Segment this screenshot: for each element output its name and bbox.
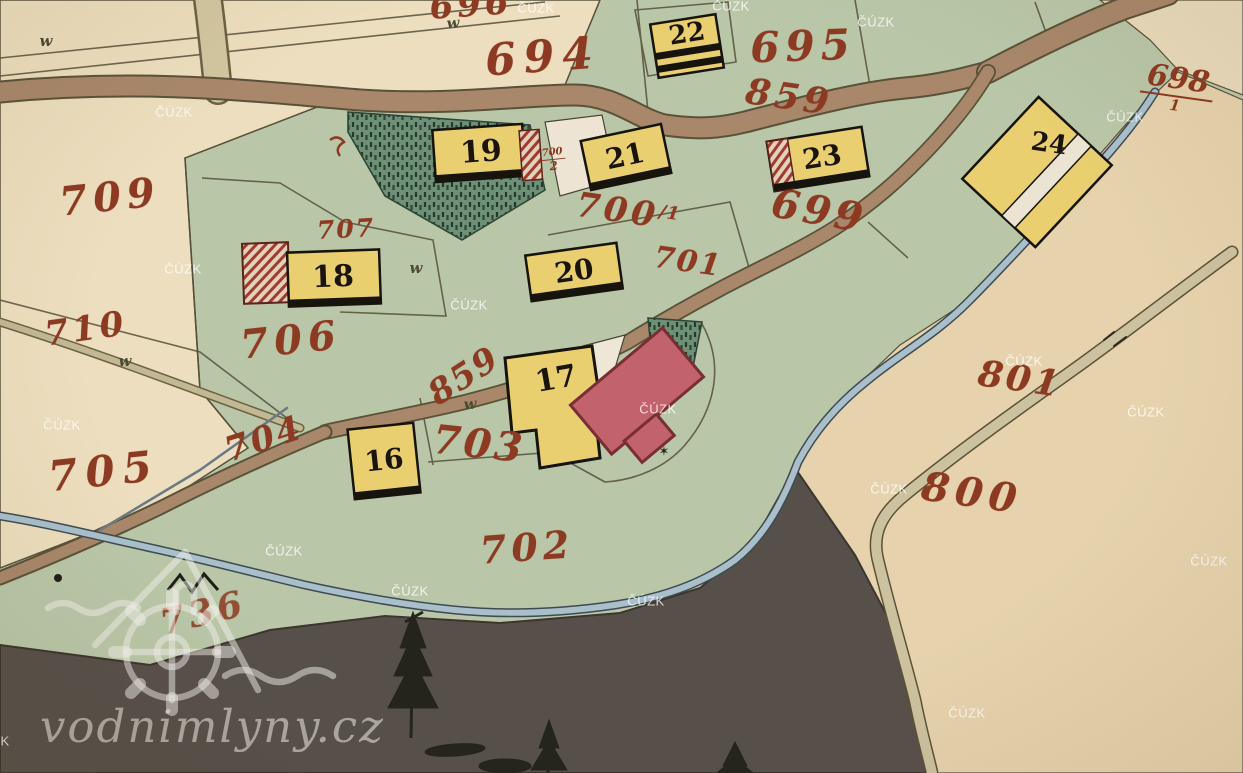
cuzk-watermark: ČÚZK [870, 482, 907, 497]
cuzk-watermark: ČÚZK [265, 544, 302, 559]
cuzk-watermark: ČÚZK [627, 594, 664, 609]
cuzk-watermark: ČÚZK [391, 584, 428, 599]
cuzk-watermark: ČÚZK [517, 1, 554, 16]
cuzk-watermark: ČÚZK [164, 262, 201, 277]
cuzk-watermark: ČÚZK [1127, 405, 1164, 420]
cuzk-watermark: ČÚZK [857, 15, 894, 30]
cuzk-watermark: ČÚZK [948, 706, 985, 721]
cuzk-watermark: ČÚZK [155, 105, 192, 120]
site-watermark: vodnimlyny.cz [40, 700, 385, 753]
cuzk-watermark: ČÚZK [1190, 554, 1227, 569]
cadastral-map[interactable]: 696 694 695 859 699 700/1 701 707 709 71… [0, 0, 1243, 773]
cuzk-watermark: ČÚZK [0, 734, 10, 749]
cuzk-watermark: ČÚZK [43, 418, 80, 433]
cuzk-watermark: ČÚZK [1106, 110, 1143, 125]
cuzk-watermark: ČÚZK [1005, 354, 1042, 369]
watermark-layer: vodnimlyny.cz ČÚZK ČÚZK ČÚZK ČÚZK ČÚZK Č… [0, 0, 1243, 773]
cuzk-watermark: ČÚZK [450, 298, 487, 313]
cuzk-watermark: ČÚZK [639, 402, 676, 417]
cuzk-watermark: ČÚZK [712, 0, 749, 14]
